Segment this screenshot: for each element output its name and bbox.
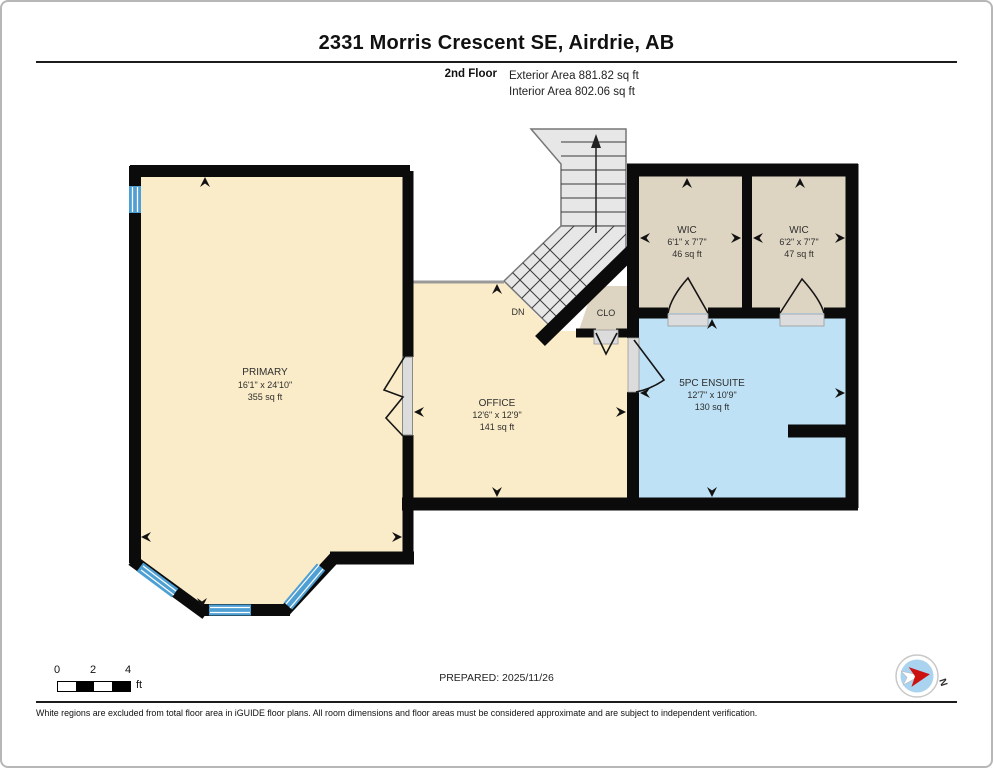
svg-text:PRIMARY: PRIMARY <box>242 367 288 378</box>
svg-text:47 sq ft: 47 sq ft <box>784 249 814 259</box>
footer-divider <box>36 701 957 703</box>
label-closet: CLO <box>597 308 616 318</box>
svg-text:46 sq ft: 46 sq ft <box>672 249 702 259</box>
svg-text:WIC: WIC <box>677 225 696 236</box>
window-bay-bottom <box>209 608 251 613</box>
stairs-upper-run <box>531 129 626 226</box>
svg-text:WIC: WIC <box>789 225 808 236</box>
svg-text:130 sq ft: 130 sq ft <box>695 402 730 412</box>
disclaimer-text: White regions are excluded from total fl… <box>36 708 973 718</box>
floor-plan-drawing: PRIMARY 16'1" x 24'10" 355 sq ft OFFICE … <box>0 0 993 768</box>
svg-text:OFFICE: OFFICE <box>479 398 516 409</box>
svg-text:12'6" x 12'9": 12'6" x 12'9" <box>472 410 521 420</box>
svg-text:6'1" x 7'7": 6'1" x 7'7" <box>667 237 706 247</box>
svg-text:355 sq ft: 355 sq ft <box>248 392 283 402</box>
svg-text:141 sq ft: 141 sq ft <box>480 422 515 432</box>
svg-text:16'1" x 24'10": 16'1" x 24'10" <box>238 380 292 390</box>
compass-icon: N <box>890 650 960 708</box>
ensuite-floor <box>633 313 852 505</box>
prepared-date: PREPARED: 2025/11/26 <box>0 672 993 684</box>
floor-plan-page: { "header": { "title": "2331 Morris Cres… <box>0 0 993 768</box>
svg-text:12'7" x 10'9": 12'7" x 10'9" <box>687 390 736 400</box>
svg-text:6'2" x 7'7": 6'2" x 7'7" <box>779 237 818 247</box>
window-left <box>133 186 138 213</box>
label-stairs-dn: DN <box>512 307 525 317</box>
svg-text:5PC ENSUITE: 5PC ENSUITE <box>679 378 745 389</box>
